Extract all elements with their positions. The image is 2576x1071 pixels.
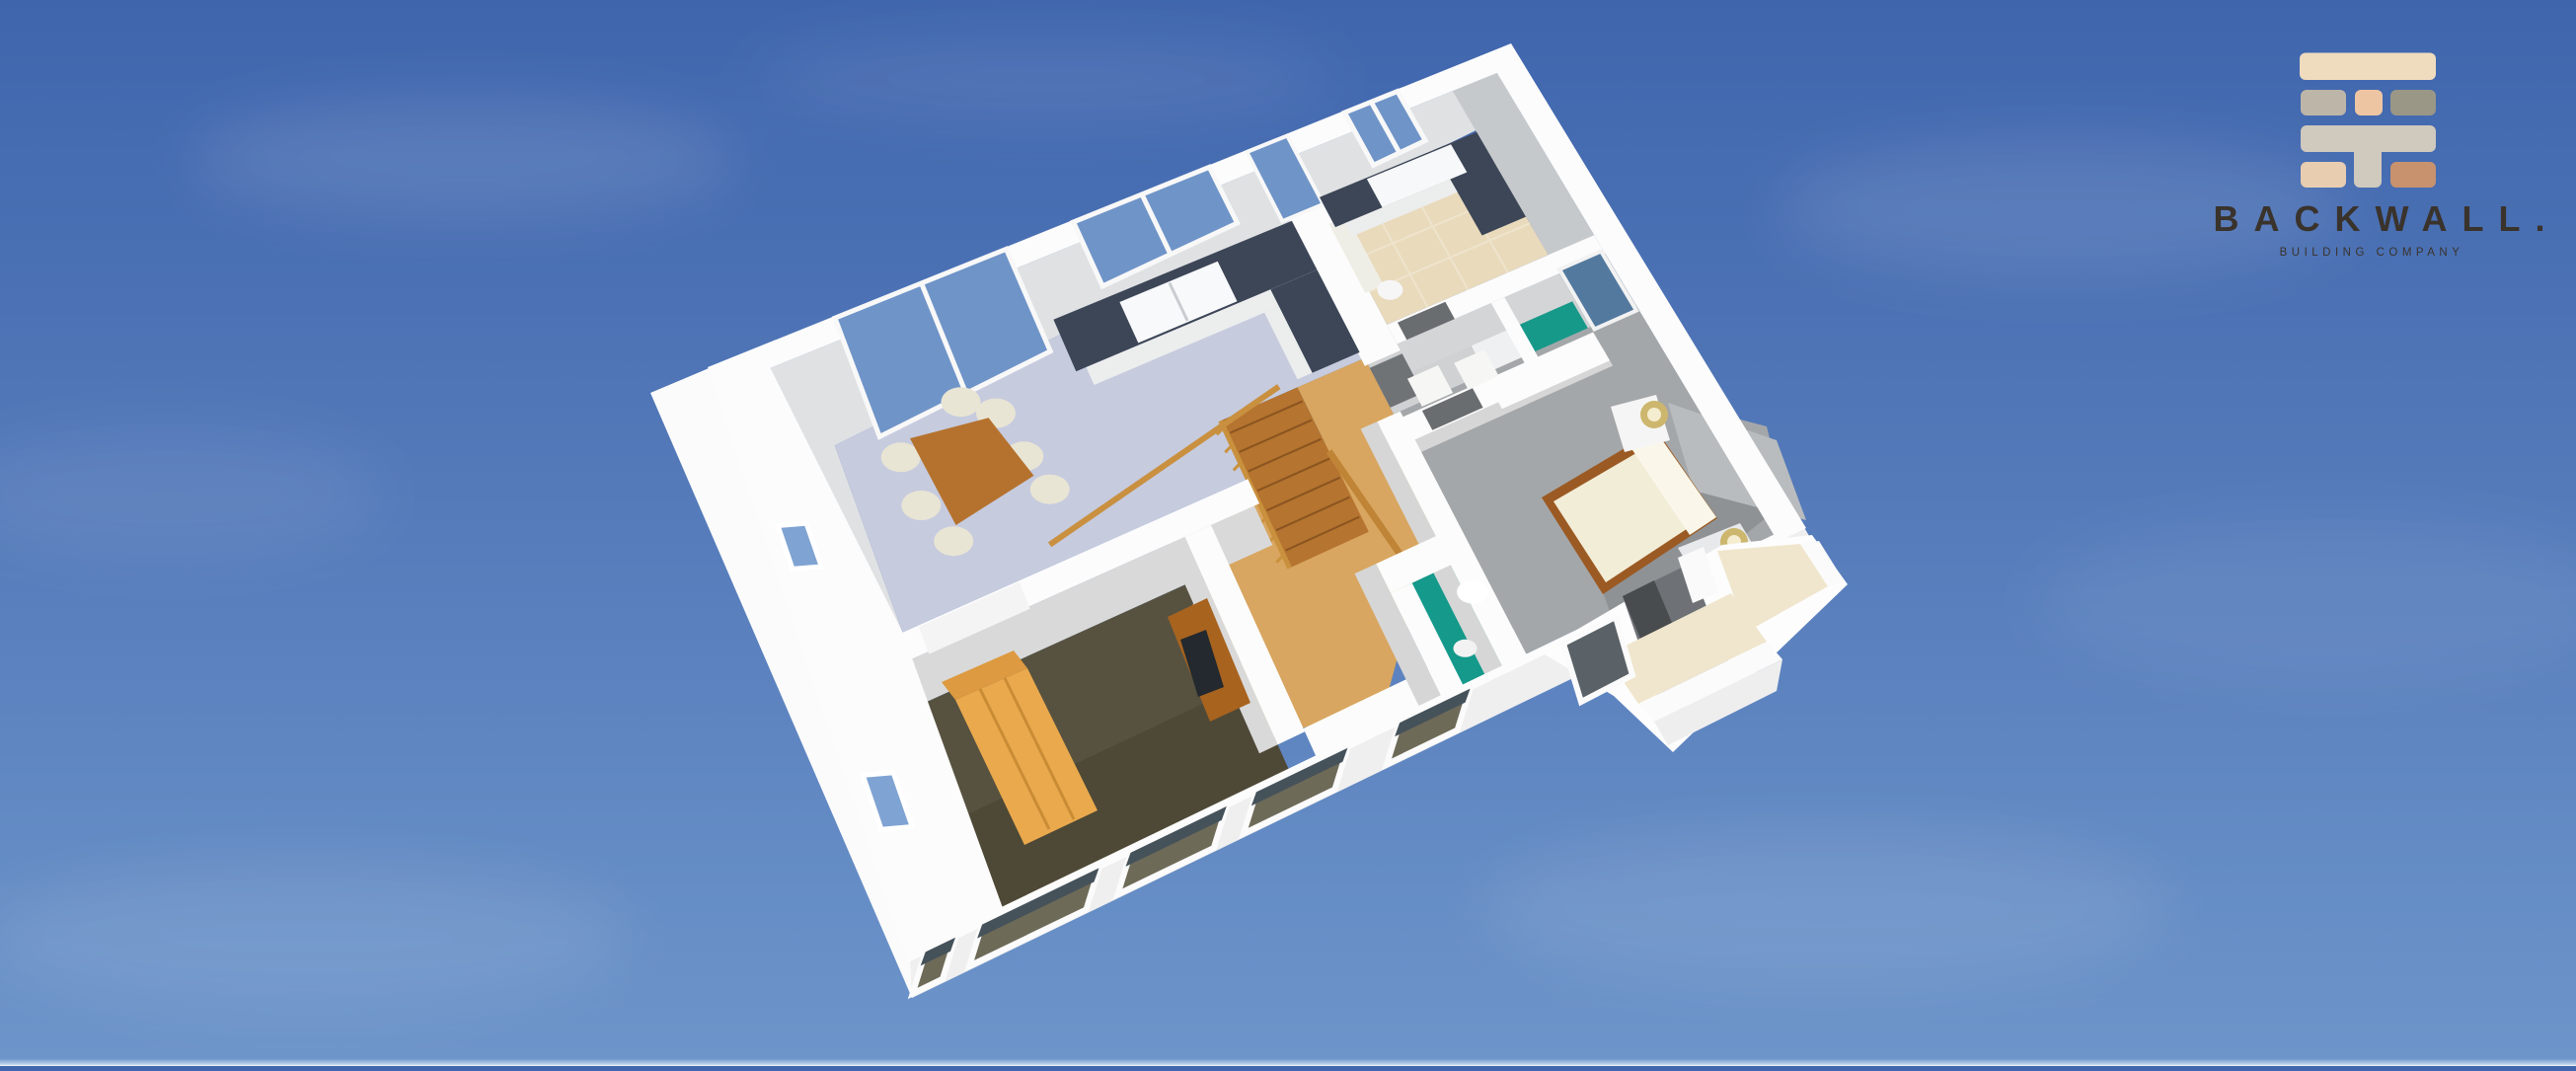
svg-text:BACKWALL.: BACKWALL. [2214,198,2560,239]
svg-text:BUILDING COMPANY: BUILDING COMPANY [2280,247,2464,259]
